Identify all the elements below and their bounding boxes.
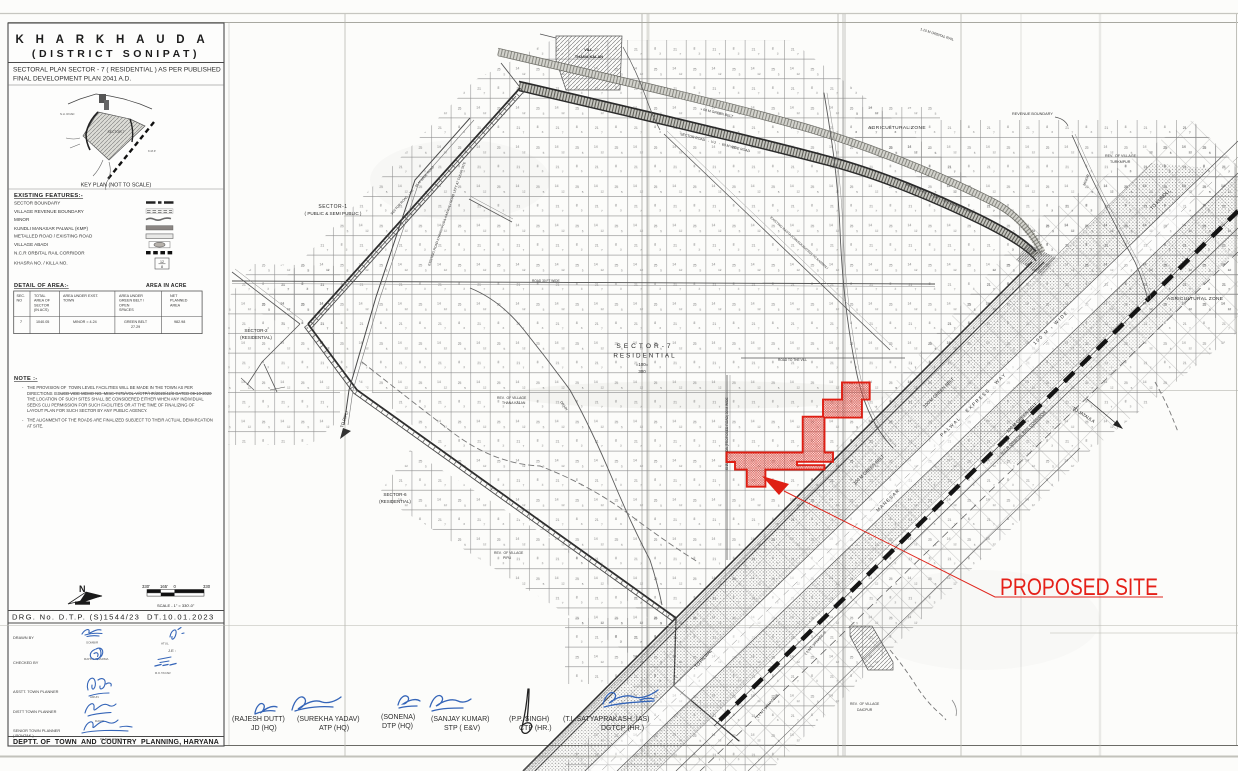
svg-text:LAYOUT PLAN FOR SUCH SECTOR BY: LAYOUT PLAN FOR SUCH SECTOR BY ANY PUBLI… (27, 408, 147, 413)
svg-text:REV. OF VILLAGE: REV. OF VILLAGE (1105, 154, 1137, 158)
svg-text:300: 300 (638, 369, 646, 374)
svg-text:PLANNED: PLANNED (170, 299, 188, 303)
svg-text:MINOR = 4.24: MINOR = 4.24 (73, 320, 97, 324)
svg-text:THANA KALAN: THANA KALAN (502, 401, 526, 405)
svg-text:R.K.TAYAR: R.K.TAYAR (155, 671, 171, 675)
svg-text:THE PROVISION OF TOWN LEVEL F: THE PROVISION OF TOWN LEVEL FACILITIES W… (27, 385, 193, 390)
svg-text:NO: NO (17, 299, 23, 303)
svg-text:(IN ACS): (IN ACS) (34, 308, 49, 312)
svg-text:STP ( E&V): STP ( E&V) (444, 725, 480, 732)
svg-text:DAICPUR: DAICPUR (857, 708, 873, 712)
svg-text:DT.10.01.2023: DT.10.01.2023 (147, 613, 215, 622)
svg-text:982.98: 982.98 (174, 320, 185, 324)
svg-text:DETAIL OF AREA:-: DETAIL OF AREA:- (14, 283, 69, 289)
svg-text:TURKMPUR: TURKMPUR (1110, 160, 1131, 164)
svg-text:(SUREKHA YADAV): (SUREKHA YADAV) (297, 716, 360, 723)
svg-text:N.C.R ORBITAL RAIL CORRIDOR: N.C.R ORBITAL RAIL CORRIDOR (14, 251, 85, 256)
svg-text:DRG. No. D.T.P. (S)1544/23: DRG. No. D.T.P. (S)1544/23 (12, 613, 140, 622)
svg-text:ROAD 30 FT WIDE: ROAD 30 FT WIDE (532, 279, 560, 283)
svg-text:(P.P. SINGH): (P.P. SINGH) (509, 716, 549, 723)
svg-text:27.29: 27.29 (131, 325, 140, 329)
svg-text:330: 330 (203, 584, 211, 589)
svg-text:RESIDENTIAL: RESIDENTIAL (613, 353, 676, 360)
svg-text:ATP (HQ): ATP (HQ) (319, 725, 349, 732)
svg-text:(DISTRICT SONIPAT): (DISTRICT SONIPAT) (32, 48, 200, 60)
svg-text:AREA UNDER EXST.: AREA UNDER EXST. (63, 294, 98, 298)
svg-text:(T.L.SATYAPRAKASH, IAS): (T.L.SATYAPRAKASH, IAS) (563, 716, 650, 723)
svg-text:AT SITE.: AT SITE. (27, 423, 43, 428)
svg-text:SEEKS CLU PERMISSION FOR SUCH: SEEKS CLU PERMISSION FOR SUCH FACILITIES… (27, 402, 195, 407)
svg-text:AREA: AREA (170, 303, 181, 307)
svg-text:ROAD TO THE VILL: ROAD TO THE VILL (778, 358, 807, 362)
svg-text:SECTOR-7: SECTOR-7 (616, 343, 673, 350)
svg-text:AGRICULTURAL ZONE: AGRICULTURAL ZONE (1167, 296, 1223, 302)
svg-text:ASSTT. TOWN PLANNER: ASSTT. TOWN PLANNER (13, 689, 59, 694)
svg-text:REV. OF VILLAGE: REV. OF VILLAGE (497, 396, 527, 400)
svg-text:SECTOR-6: SECTOR-6 (383, 492, 407, 497)
svg-text:SECTORAL PLAN SECTOR - 7 ( RES: SECTORAL PLAN SECTOR - 7 ( RESIDENTIAL )… (13, 67, 221, 74)
svg-text:(RAJESH DUTT): (RAJESH DUTT) (232, 716, 285, 723)
svg-text:330': 330' (142, 584, 150, 589)
svg-text:GREEN BELT /: GREEN BELT / (119, 299, 145, 303)
svg-text:=100=: =100= (636, 362, 649, 367)
svg-text:8: 8 (161, 265, 163, 269)
svg-text:(RESIDENTIAL): (RESIDENTIAL) (379, 499, 411, 504)
svg-text:J.E :: J.E : (168, 648, 176, 653)
svg-text:THE LOCATION OF SUCH SITES SHA: THE LOCATION OF SUCH SITES SHALL BE CONS… (27, 397, 204, 402)
svg-text:(RESIDENTIAL): (RESIDENTIAL) (240, 335, 272, 340)
svg-text:SPACES: SPACES (119, 308, 134, 312)
svg-text:AREA OF: AREA OF (34, 299, 51, 303)
svg-text:SECTOR-7: SECTOR-7 (107, 130, 124, 134)
svg-text:FINAL DEVELOPMENT PLAN 2041 A.: FINAL DEVELOPMENT PLAN 2041 A.D. (13, 76, 131, 83)
svg-text:PROPOSED SITE: PROPOSED SITE (1000, 574, 1158, 601)
svg-text:MINOR: MINOR (14, 217, 30, 222)
svg-text:KHARKHAUDA: KHARKHAUDA (15, 34, 216, 46)
svg-text:NET: NET (170, 294, 178, 298)
svg-text:VILLAGE REVENUE BOUNDARY: VILLAGE REVENUE BOUNDARY (14, 209, 84, 214)
svg-text:REV. OF VILLAGE: REV. OF VILLAGE (494, 551, 524, 555)
svg-text:AREA IN ACRE: AREA IN ACRE (146, 283, 187, 289)
svg-text:SECTOR-1: SECTOR-1 (318, 204, 347, 210)
svg-text:AGRICULTURAL ZONE: AGRICULTURAL ZONE (868, 125, 926, 131)
svg-text:7: 7 (20, 320, 22, 324)
svg-text:AREA UNDER: AREA UNDER (119, 294, 143, 298)
svg-text:CTP (HR.): CTP (HR.) (519, 725, 552, 732)
svg-text:SEC.: SEC. (17, 294, 26, 298)
svg-text:JD (HQ): JD (HQ) (251, 725, 277, 732)
svg-text:TOWN: TOWN (63, 299, 75, 303)
svg-text:SECTOR BOUNDARY: SECTOR BOUNDARY (14, 200, 60, 205)
svg-text:KEY PLAN (NOT TO SCALE): KEY PLAN (NOT TO SCALE) (81, 183, 152, 189)
svg-text:REV. OF VILLAGE: REV. OF VILLAGE (850, 702, 880, 706)
svg-text:REVENUE BOUNDARY: REVENUE BOUNDARY (1012, 112, 1053, 116)
svg-text:DGTCP (HR.): DGTCP (HR.) (601, 725, 644, 732)
svg-text:( PUBLIC & SEMI PUBLIC ): ( PUBLIC & SEMI PUBLIC ) (305, 211, 362, 216)
svg-text:DEPTT. OF TOWN AND COUNTRY: DEPTT. OF TOWN AND COUNTRY PLANNING, HAR… (13, 739, 219, 746)
svg-text:GREEN BELT: GREEN BELT (124, 320, 148, 324)
svg-text:(SONENA): (SONENA) (381, 714, 415, 721)
svg-text:OPEN: OPEN (119, 303, 130, 307)
svg-text:DTP (HQ): DTP (HQ) (382, 723, 413, 730)
svg-text:165': 165' (160, 584, 168, 589)
svg-text:VILL.: VILL. (584, 47, 594, 52)
svg-text:K.M.P.: K.M.P. (148, 149, 156, 153)
svg-text:SECTOR: SECTOR (34, 303, 50, 307)
svg-text:SCALE - 1" = 330'-0": SCALE - 1" = 330'-0" (157, 603, 195, 608)
svg-text:NOTE :-: NOTE :- (14, 376, 38, 382)
svg-text:TOTAL: TOTAL (34, 294, 46, 298)
svg-text:SECTOR-2: SECTOR-2 (244, 328, 268, 333)
svg-text:THE ALIGNMENT OF THE ROADS ARE: THE ALIGNMENT OF THE ROADS ARE FINALIZED… (27, 418, 213, 423)
svg-text:KHASRA NO. / KILLA NO.: KHASRA NO. / KILLA NO. (14, 261, 68, 266)
svg-text:DRAWN BY: DRAWN BY (13, 635, 34, 640)
svg-text:KUNDLI MANASAR PALWAL (KMP): KUNDLI MANASAR PALWAL (KMP) (14, 226, 88, 231)
svg-text:( ROHTAK ): ( ROHTAK ) (13, 733, 34, 738)
svg-text:METALLED ROAD / EXISTING ROAD: METALLED ROAD / EXISTING ROAD (14, 234, 93, 239)
svg-text:CHECKED BY: CHECKED BY (13, 660, 39, 665)
svg-text:1040.05: 1040.05 (36, 320, 49, 324)
svg-text:12: 12 (160, 260, 164, 264)
svg-text:VILLAGE ABADI: VILLAGE ABADI (14, 242, 48, 247)
svg-text:EXISTING FEATURES:-: EXISTING FEATURES:- (14, 193, 83, 199)
svg-text:PIPLI: PIPLI (503, 556, 511, 560)
svg-text:(SANJAY KUMAR): (SANJAY KUMAR) (431, 716, 489, 723)
svg-text:N: N (79, 584, 86, 594)
svg-text:ATUL: ATUL (161, 642, 169, 646)
svg-text:N.H. ROAD: N.H. ROAD (60, 112, 74, 116)
svg-text:DISTT TOWN PLANNER: DISTT TOWN PLANNER (13, 709, 57, 714)
svg-text:THANA KALAN: THANA KALAN (575, 54, 603, 59)
svg-text:SOMBIR: SOMBIR (86, 641, 99, 645)
